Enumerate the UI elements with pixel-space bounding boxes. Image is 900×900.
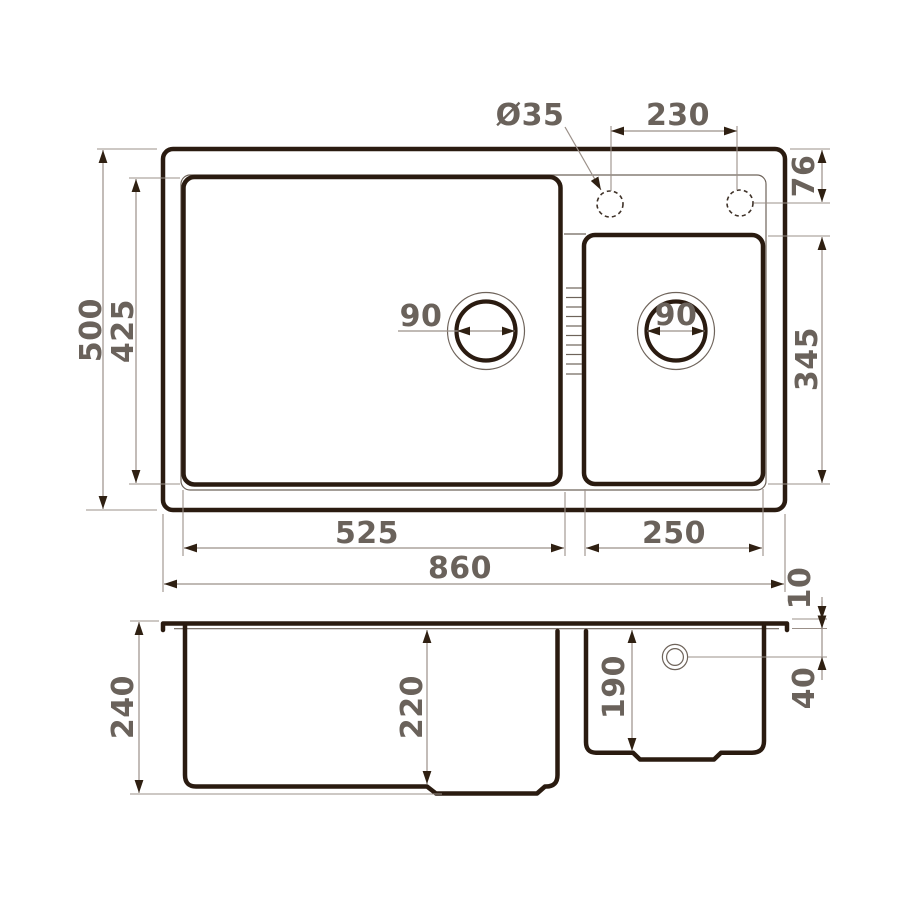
dim-label-rim-thickness: 10	[783, 567, 818, 610]
top-view-dimension-lines	[103, 127, 822, 584]
dim-label-main-drain-diameter: 90	[400, 299, 443, 334]
faucet-hole-left	[597, 191, 623, 217]
dim-label-small-drain-diameter: 90	[655, 298, 698, 333]
dim-label-small-bowl-depth: 190	[597, 655, 632, 719]
side-view-dimension-lines	[139, 597, 822, 793]
dim-label-hole-edge-offset: 76	[787, 155, 822, 198]
dim-label-small-bowl-width: 250	[642, 516, 706, 551]
side-view-extension-lines	[130, 619, 827, 794]
small-bowl-drain-hole	[662, 644, 687, 669]
dim-label-bowl-depth: 425	[106, 299, 141, 363]
dim-label-overall-height: 240	[106, 675, 141, 739]
dim-label-main-bowl-width: 525	[335, 516, 399, 551]
top-view-extension-lines	[86, 126, 830, 592]
main-bowl-profile	[185, 625, 558, 794]
dim-label-hole-spacing: 230	[646, 98, 710, 133]
dim-label-small-bowl-length: 345	[790, 327, 825, 391]
faucet-hole-right	[727, 190, 753, 216]
top-view: Ø35 230 76 345 90 90 500 425 525 250 860	[74, 98, 830, 592]
dim-label-main-bowl-depth: 220	[395, 675, 430, 739]
dim-label-faucet-hole-diameter: Ø35	[496, 98, 565, 133]
dim-label-overall-depth: 500	[74, 298, 109, 362]
dim-label-overall-width: 860	[428, 551, 492, 586]
sink-dimension-drawing: Ø35 230 76 345 90 90 500 425 525 250 860	[0, 0, 900, 900]
side-view: 240 220 190 10 40	[106, 567, 827, 794]
dim-label-drain-center-offset: 40	[787, 667, 822, 710]
technical-drawing-canvas: Ø35 230 76 345 90 90 500 425 525 250 860	[0, 0, 900, 900]
